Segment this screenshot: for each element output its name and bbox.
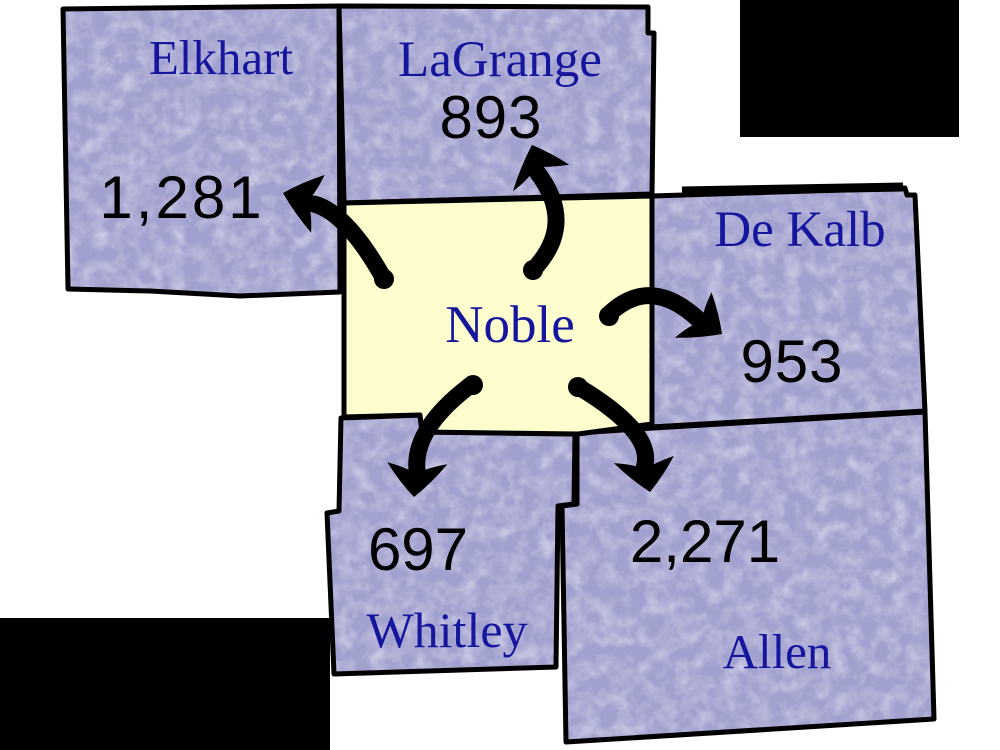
svg-text:953: 953: [740, 328, 843, 395]
svg-text:893: 893: [439, 84, 542, 151]
svg-text:LaGrange: LaGrange: [398, 32, 602, 88]
svg-text:Allen: Allen: [723, 624, 832, 679]
svg-text:2,271: 2,271: [630, 508, 780, 575]
svg-text:Elkhart: Elkhart: [149, 30, 294, 85]
svg-text:697: 697: [368, 516, 468, 583]
svg-text:1,281: 1,281: [99, 164, 264, 231]
svg-text:Whitley: Whitley: [366, 602, 527, 658]
svg-text:Noble: Noble: [445, 296, 575, 354]
svg-text:De Kalb: De Kalb: [714, 202, 885, 258]
